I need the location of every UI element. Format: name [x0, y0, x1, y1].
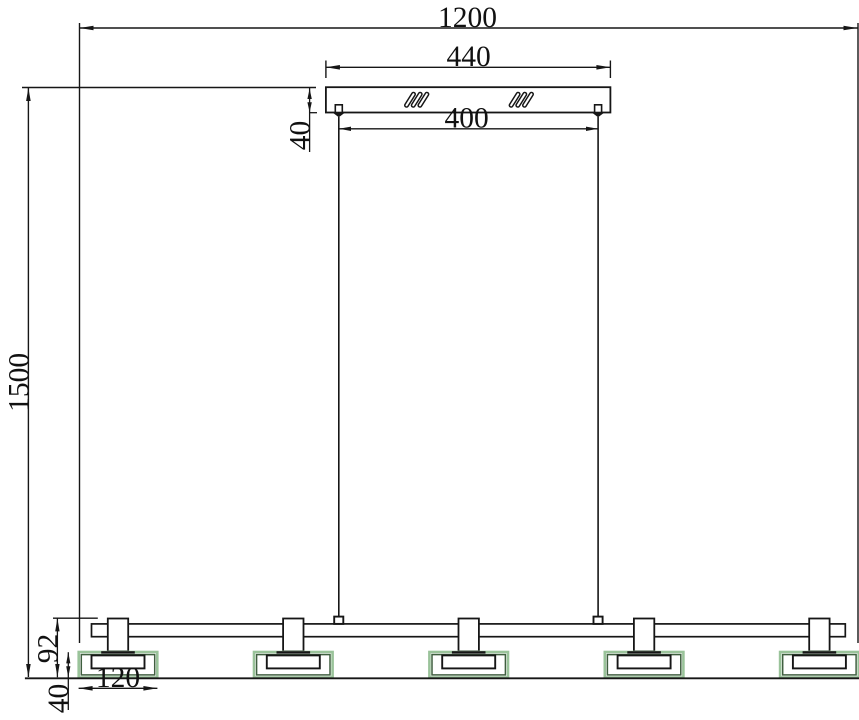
svg-text:440: 440	[446, 41, 490, 73]
svg-text:1200: 1200	[438, 2, 497, 34]
svg-text:120: 120	[96, 662, 140, 694]
svg-text:40: 40	[43, 684, 75, 714]
svg-text:92: 92	[32, 634, 64, 664]
svg-text:1500: 1500	[3, 353, 35, 412]
svg-text:400: 400	[444, 103, 488, 135]
svg-text:40: 40	[284, 121, 316, 151]
